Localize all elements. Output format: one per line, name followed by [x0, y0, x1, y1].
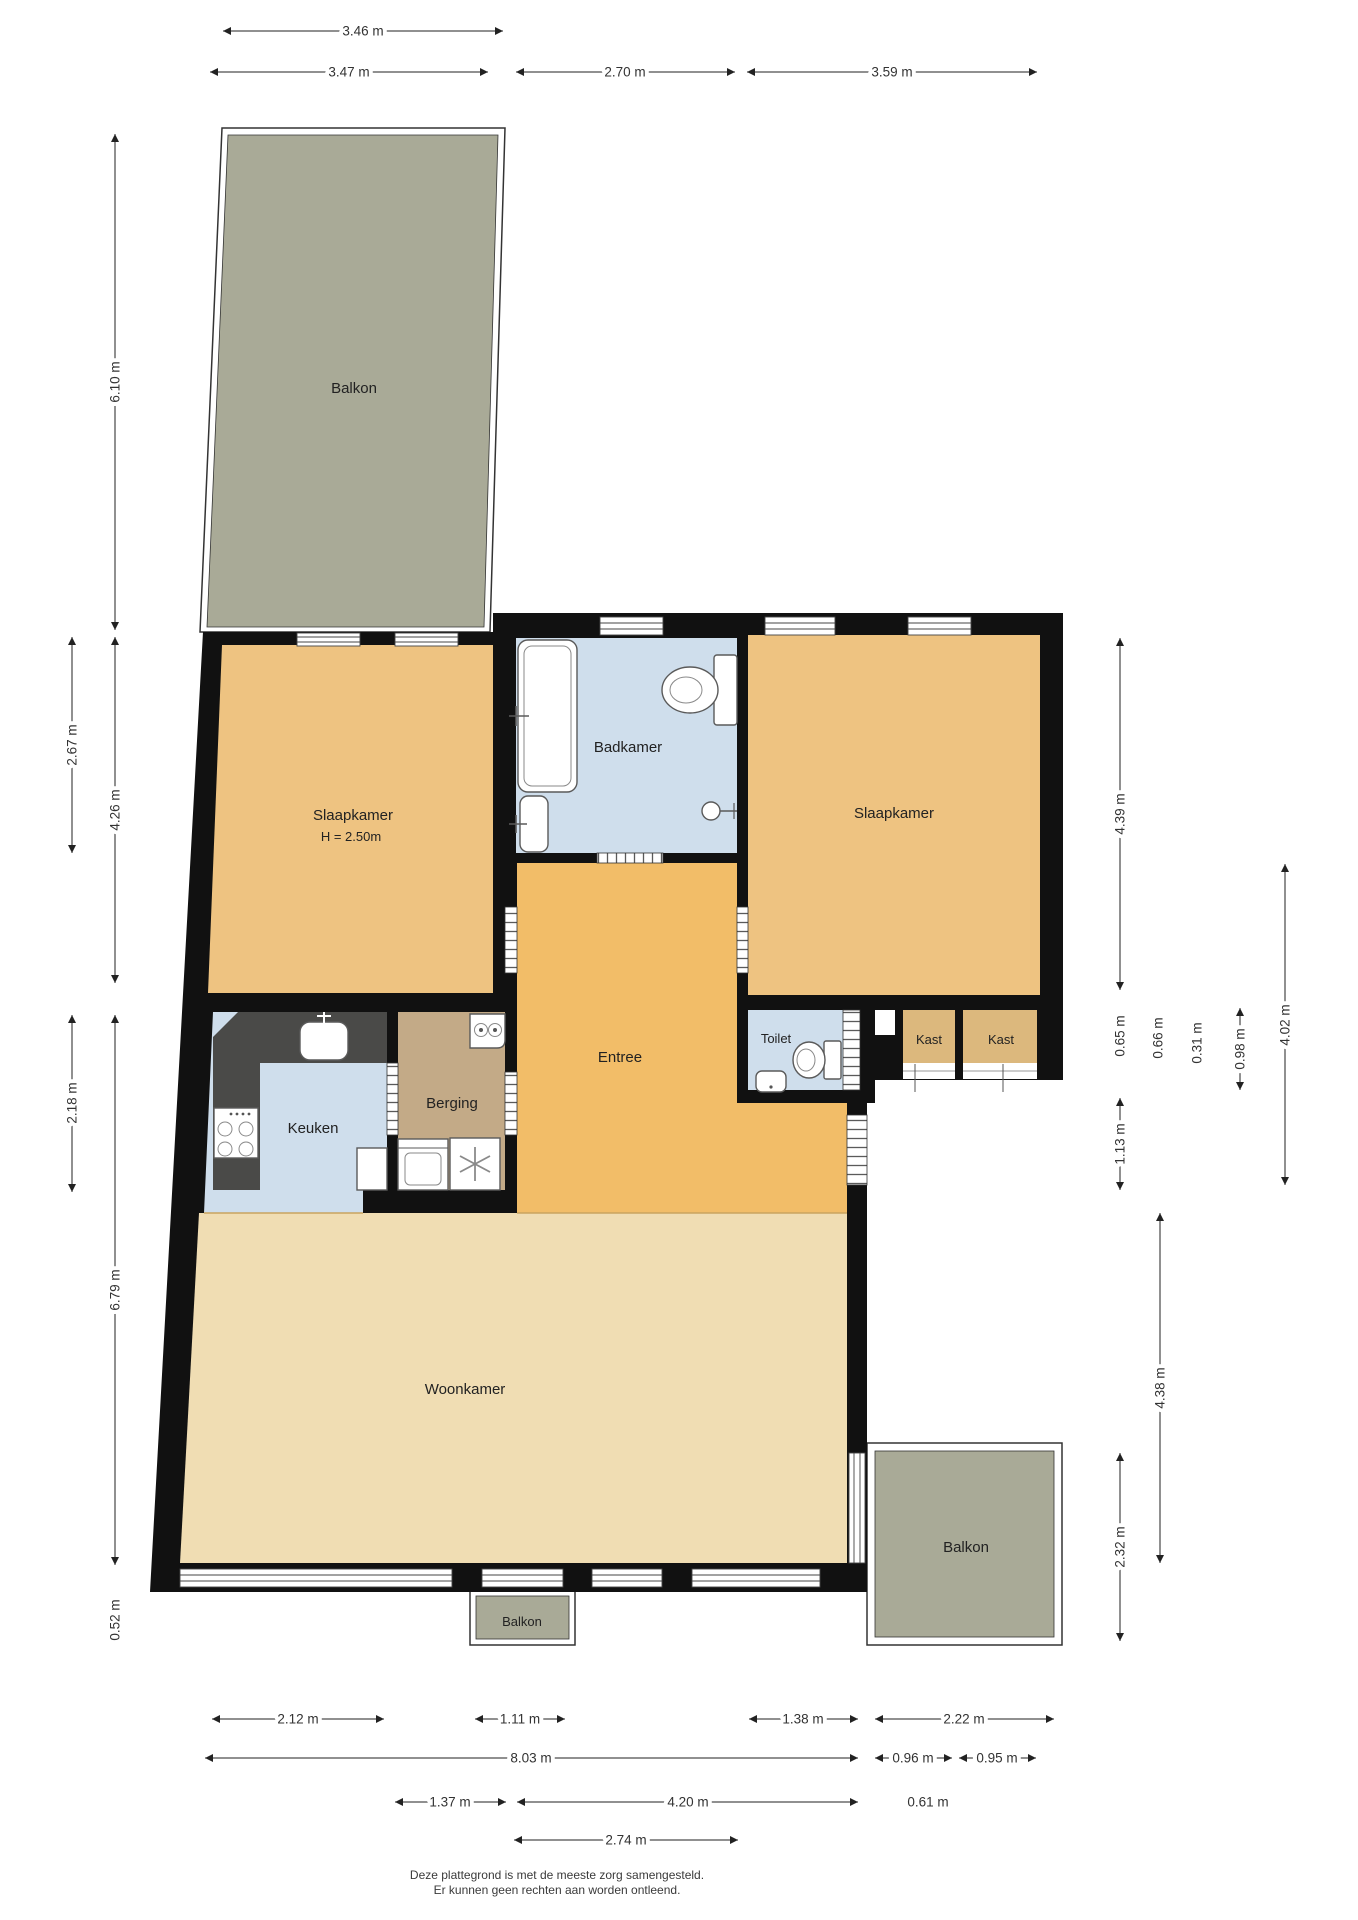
window-woonkamer-3	[692, 1569, 820, 1587]
label-keuken: Keuken	[288, 1120, 339, 1137]
kast-doors	[903, 1063, 1037, 1092]
dimension-label: 3.59 m	[871, 65, 912, 80]
floorplan-drawing: Balkon Slaapkamer H = 2.50m Badkamer Sla…	[0, 0, 1358, 1920]
dimension-label: 1.11 m	[500, 1712, 540, 1727]
dimension-label: 1.38 m	[782, 1712, 823, 1727]
disclaimer: Deze plattegrond is met de meeste zorg s…	[410, 1868, 704, 1897]
window-slaapkamer-right-2	[908, 617, 971, 635]
label-balkon-bottom: Balkon	[502, 1614, 542, 1629]
dimension-label: 0.95 m	[976, 1751, 1017, 1766]
window-slaapkamer-left-1	[297, 633, 360, 646]
label-balkon-top: Balkon	[331, 380, 377, 397]
wall-niche	[875, 1010, 895, 1035]
washing-machine-icon	[398, 1139, 448, 1190]
door-badkamer	[597, 853, 663, 863]
dimension-label: 3.47 m	[328, 65, 369, 80]
dimension-label: 0.98 m	[1233, 1028, 1248, 1069]
dimension-label: 8.03 m	[510, 1751, 551, 1766]
dimension-label: 1.13 m	[1113, 1123, 1128, 1164]
floorplan-page: Balkon Slaapkamer H = 2.50m Badkamer Sla…	[0, 0, 1358, 1920]
disclaimer-line-1: Deze plattegrond is met de meeste zorg s…	[410, 1868, 704, 1882]
window-balcony-door-right	[849, 1453, 865, 1563]
dimension-label: 6.79 m	[108, 1269, 123, 1310]
front-door	[847, 1115, 867, 1185]
disclaimer-line-2: Er kunnen geen rechten aan worden ontlee…	[434, 1883, 681, 1897]
label-slaapkamer-left-height: H = 2.50m	[321, 829, 381, 844]
label-balkon-right: Balkon	[943, 1539, 989, 1556]
door-slaapkamer-left	[505, 907, 517, 973]
door-slaapkamer-right	[737, 907, 748, 973]
dimension-label: 4.02 m	[1278, 1004, 1293, 1045]
dimension-label: 0.66 m	[1151, 1017, 1166, 1058]
dimension-label: 1.37 m	[429, 1795, 470, 1810]
label-badkamer: Badkamer	[594, 739, 662, 756]
freezer-icon	[450, 1138, 500, 1190]
label-kast-left: Kast	[916, 1032, 942, 1047]
label-woonkamer: Woonkamer	[425, 1381, 506, 1398]
dimension-label: 4.39 m	[1113, 793, 1128, 834]
boiler-icon	[470, 1014, 505, 1048]
dimension-label: 6.10 m	[108, 361, 123, 402]
window-slaapkamer-left-2	[395, 633, 458, 646]
dimension-label: 0.31 m	[1190, 1022, 1205, 1063]
dimension-label: 0.52 m	[108, 1599, 123, 1640]
dimension-label: 4.26 m	[108, 789, 123, 830]
label-toilet: Toilet	[761, 1031, 792, 1046]
dimension-label: 2.32 m	[1113, 1526, 1128, 1567]
dimension-label: 0.61 m	[907, 1795, 948, 1810]
room-woonkamer	[180, 1213, 847, 1563]
window-slaapkamer-right-1	[765, 617, 835, 635]
dimension-label: 3.46 m	[342, 24, 383, 39]
door-toilet	[843, 1010, 860, 1090]
dimension-label: 2.74 m	[605, 1833, 646, 1848]
dimension-label: 0.65 m	[1113, 1015, 1128, 1056]
label-berging: Berging	[426, 1095, 478, 1112]
door-berging-entree	[505, 1072, 517, 1135]
bathtub-icon	[509, 640, 577, 792]
label-slaapkamer-left: Slaapkamer	[313, 807, 393, 824]
kitchen-appliance	[357, 1148, 387, 1190]
dimension-label: 2.18 m	[65, 1082, 80, 1123]
cooktop-icon	[214, 1108, 258, 1158]
dimension-label: 2.22 m	[943, 1712, 984, 1727]
window-balcony-door-bottom	[482, 1569, 563, 1587]
dimension-label: 0.96 m	[892, 1751, 933, 1766]
label-kast-right: Kast	[988, 1032, 1014, 1047]
dimension-label: 4.20 m	[667, 1795, 708, 1810]
label-entree: Entree	[598, 1049, 642, 1066]
window-woonkamer-1	[180, 1569, 452, 1587]
toilet-sink-icon	[756, 1071, 786, 1092]
dimension-label: 2.67 m	[65, 724, 80, 765]
dimension-label: 2.70 m	[604, 65, 645, 80]
door-keuken-berging	[387, 1063, 398, 1135]
window-woonkamer-2	[592, 1569, 662, 1587]
label-slaapkamer-right: Slaapkamer	[854, 805, 934, 822]
dimension-label: 4.38 m	[1153, 1367, 1168, 1408]
toilet-icon	[793, 1041, 841, 1079]
rooms	[180, 635, 1040, 1563]
dimension-label: 2.12 m	[277, 1712, 318, 1727]
window-badkamer	[600, 617, 663, 635]
